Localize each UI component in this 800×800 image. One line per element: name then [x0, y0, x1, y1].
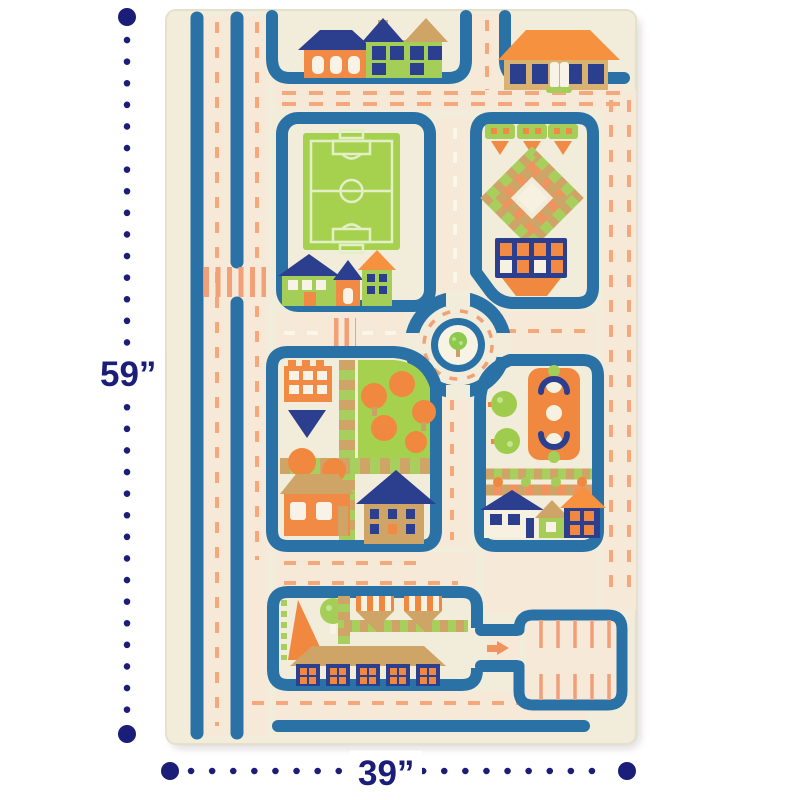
rug [166, 10, 640, 748]
width-dimension-label: 39” [350, 751, 422, 798]
soccer-field [303, 130, 400, 253]
long-building [290, 646, 446, 686]
corner-house [280, 474, 354, 536]
product-image: 59” 39” [0, 0, 800, 800]
rug-illustration [0, 0, 800, 800]
playground-track [528, 365, 580, 463]
height-dimension-label: 59” [92, 352, 164, 399]
